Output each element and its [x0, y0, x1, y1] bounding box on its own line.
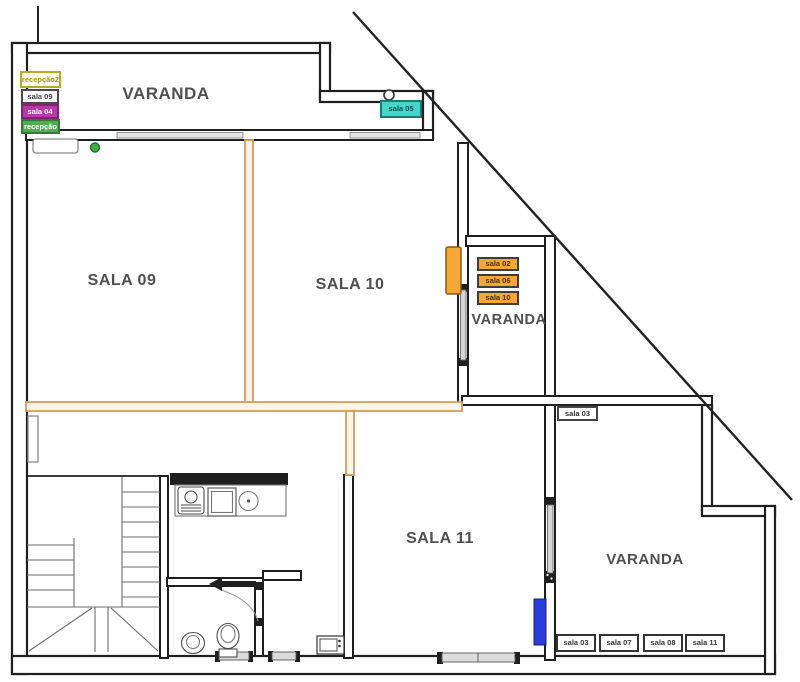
tag-sala-03-mid[interactable]: sala 03 [557, 406, 598, 421]
green-dot-marker [91, 143, 100, 152]
tag-sala-10[interactable]: sala 10 [477, 291, 519, 305]
tag-sala-11-bottom[interactable]: sala 11 [685, 634, 725, 652]
tag-sala-09[interactable]: sala 09 [21, 89, 59, 104]
kitchen-fixtures [175, 485, 286, 516]
tag-sala-05[interactable]: sala 05 [380, 100, 422, 118]
diagonal-boundary-line [353, 12, 792, 500]
tag-sala-08-bottom[interactable]: sala 08 [643, 634, 683, 652]
solid-wall-blocks [170, 284, 555, 664]
tag-sala-07-bottom[interactable]: sala 07 [599, 634, 639, 652]
blue-door-marker[interactable] [534, 599, 546, 645]
staircase [26, 476, 160, 652]
tag-sala-06[interactable]: sala 06 [477, 274, 519, 288]
bathroom-fixtures [182, 577, 259, 657]
interior-walls [26, 130, 712, 660]
orange-door-marker[interactable] [446, 247, 461, 294]
floor-plan: recepção2 sala 09 sala 04 recepção sala … [0, 0, 800, 682]
door-leaf-and-recess [28, 139, 78, 462]
tag-sala-03-bottom[interactable]: sala 03 [556, 634, 596, 652]
tag-recepcao2[interactable]: recepção2 [20, 71, 61, 88]
wall-circle-marker [384, 90, 394, 100]
tag-recepcao[interactable]: recepção [21, 119, 60, 134]
door-slabs [461, 290, 554, 573]
tag-sala-02[interactable]: sala 02 [477, 257, 519, 271]
orange-walls [26, 140, 462, 475]
tag-sala-04[interactable]: sala 04 [21, 104, 59, 119]
oven-fixture [317, 636, 344, 654]
